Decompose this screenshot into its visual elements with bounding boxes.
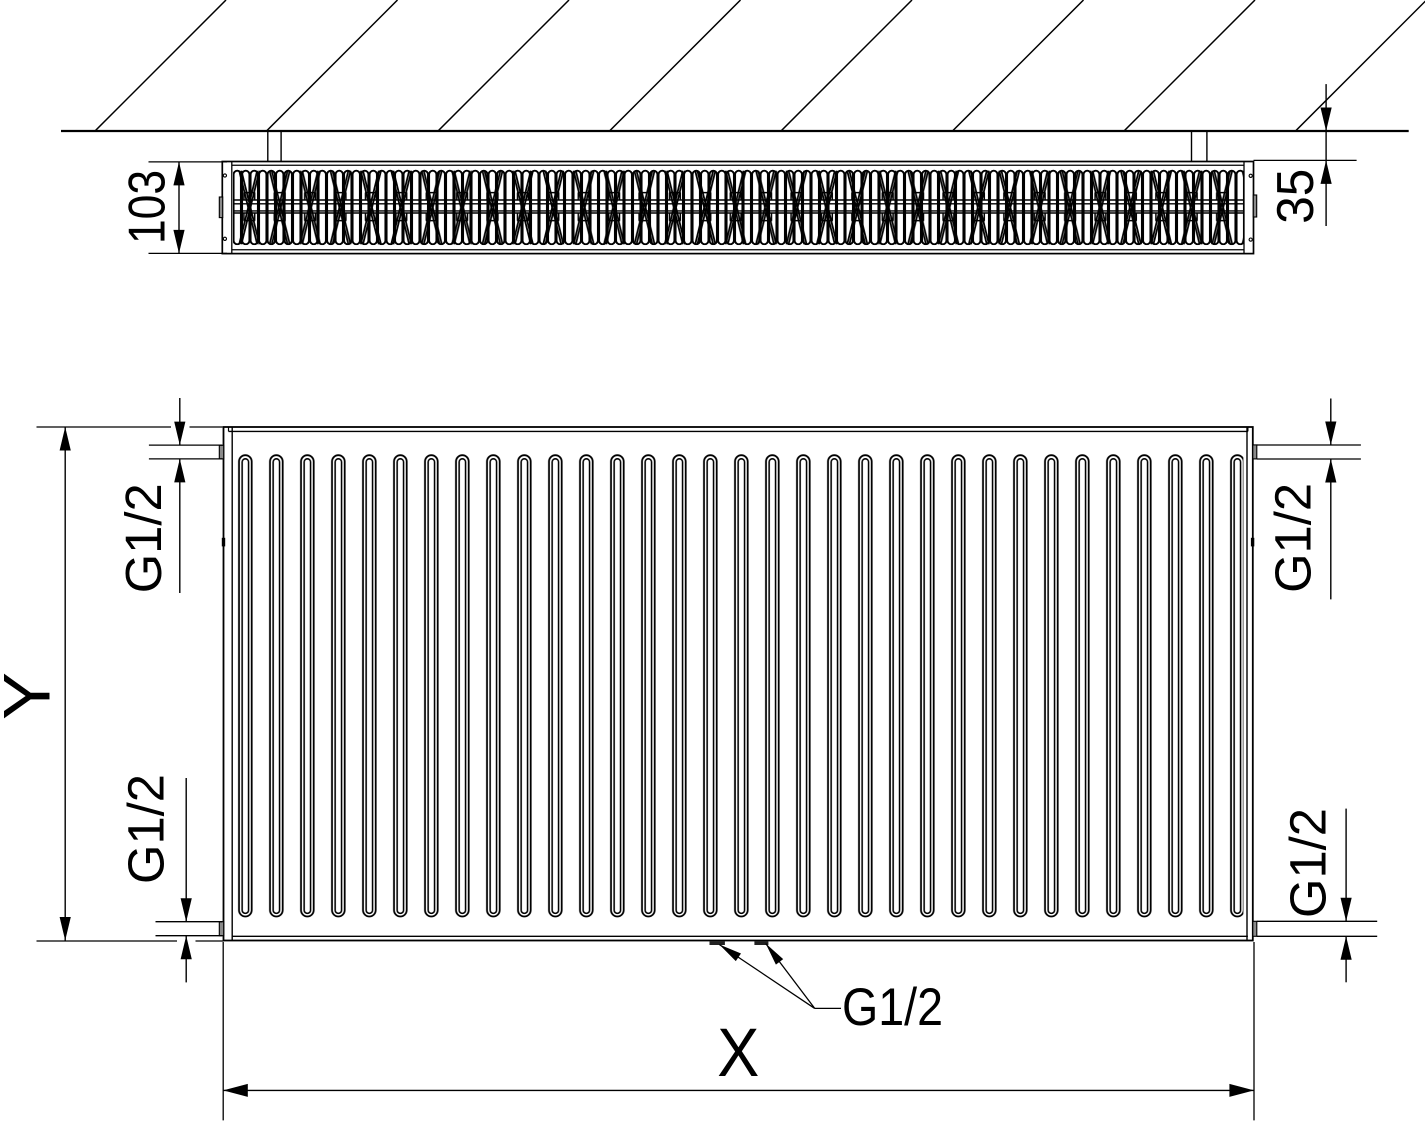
svg-text:G1/2: G1/2 [115,483,172,593]
svg-text:G1/2: G1/2 [118,774,175,884]
svg-text:G1/2: G1/2 [842,978,943,1037]
svg-text:X: X [717,1014,759,1091]
svg-text:Y: Y [0,672,64,720]
svg-text:35: 35 [1267,169,1325,224]
svg-text:G1/2: G1/2 [1265,483,1322,593]
svg-text:G1/2: G1/2 [1280,808,1337,918]
svg-text:103: 103 [118,170,176,244]
